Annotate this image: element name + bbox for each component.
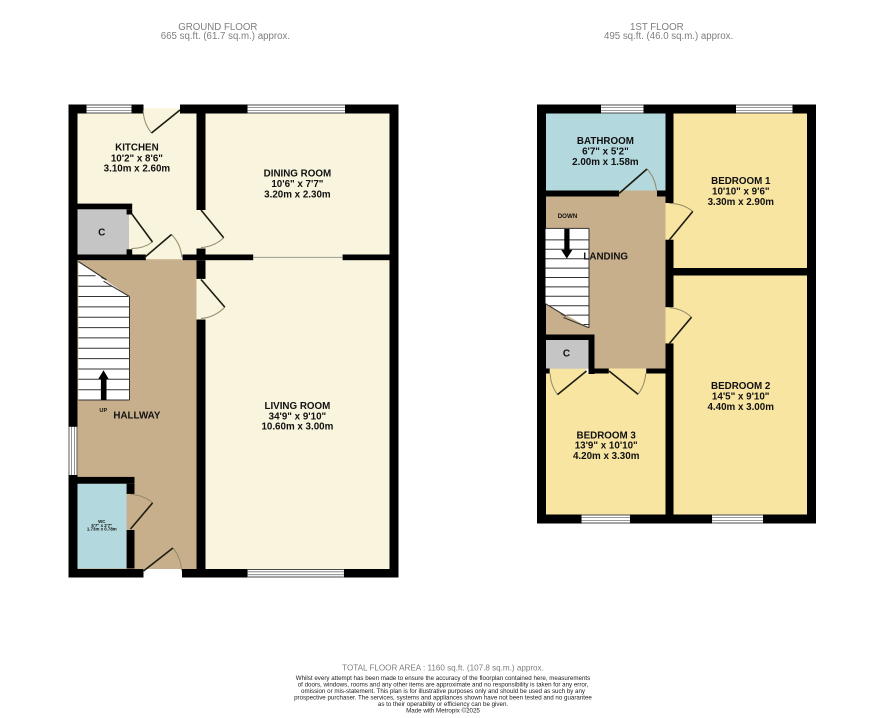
svg-text:4.20m x 3.30m: 4.20m x 3.30m bbox=[573, 451, 640, 462]
svg-text:1.73m x 0.78m: 1.73m x 0.78m bbox=[87, 527, 117, 532]
svg-text:UP: UP bbox=[99, 408, 107, 414]
svg-text:10'10" x 9'6": 10'10" x 9'6" bbox=[712, 186, 770, 197]
svg-text:HALLWAY: HALLWAY bbox=[113, 411, 160, 422]
svg-text:TOTAL FLOOR AREA : 1160 sq.ft.: TOTAL FLOOR AREA : 1160 sq.ft. (107.8 sq… bbox=[342, 663, 544, 672]
svg-text:BEDROOM 3: BEDROOM 3 bbox=[577, 430, 637, 441]
svg-text:3.30m x 2.90m: 3.30m x 2.90m bbox=[708, 197, 775, 208]
svg-text:14'5" x 9'10": 14'5" x 9'10" bbox=[712, 392, 770, 403]
svg-text:10'2" x 8'6": 10'2" x 8'6" bbox=[111, 153, 163, 164]
svg-text:C: C bbox=[563, 349, 570, 360]
svg-text:DINING ROOM: DINING ROOM bbox=[264, 169, 332, 180]
svg-text:BEDROOM 1: BEDROOM 1 bbox=[711, 176, 771, 187]
svg-text:DOWN: DOWN bbox=[558, 213, 578, 220]
svg-text:495 sq.ft. (46.0 sq.m.) approx: 495 sq.ft. (46.0 sq.m.) approx. bbox=[604, 31, 733, 42]
svg-text:BEDROOM 2: BEDROOM 2 bbox=[711, 381, 771, 392]
svg-text:BATHROOM: BATHROOM bbox=[577, 136, 634, 147]
svg-text:3.20m x 2.30m: 3.20m x 2.30m bbox=[264, 190, 331, 201]
svg-text:13'9" x 10'10": 13'9" x 10'10" bbox=[575, 441, 638, 452]
svg-text:C: C bbox=[98, 228, 105, 239]
svg-text:665 sq.ft. (61.7 sq.m.) approx: 665 sq.ft. (61.7 sq.m.) approx. bbox=[161, 31, 290, 42]
svg-text:Made with Metropix ©2025: Made with Metropix ©2025 bbox=[406, 708, 480, 715]
svg-text:3.10m x 2.60m: 3.10m x 2.60m bbox=[104, 164, 171, 175]
svg-text:10'6" x 7'7": 10'6" x 7'7" bbox=[271, 179, 323, 190]
svg-text:LANDING: LANDING bbox=[583, 252, 628, 263]
svg-text:2.00m x 1.58m: 2.00m x 1.58m bbox=[572, 157, 639, 168]
svg-text:10.60m x 3.00m: 10.60m x 3.00m bbox=[261, 422, 333, 433]
svg-text:6'7" x 5'2": 6'7" x 5'2" bbox=[582, 146, 629, 157]
svg-text:4.40m x 3.00m: 4.40m x 3.00m bbox=[707, 402, 774, 413]
svg-text:KITCHEN: KITCHEN bbox=[115, 143, 159, 154]
